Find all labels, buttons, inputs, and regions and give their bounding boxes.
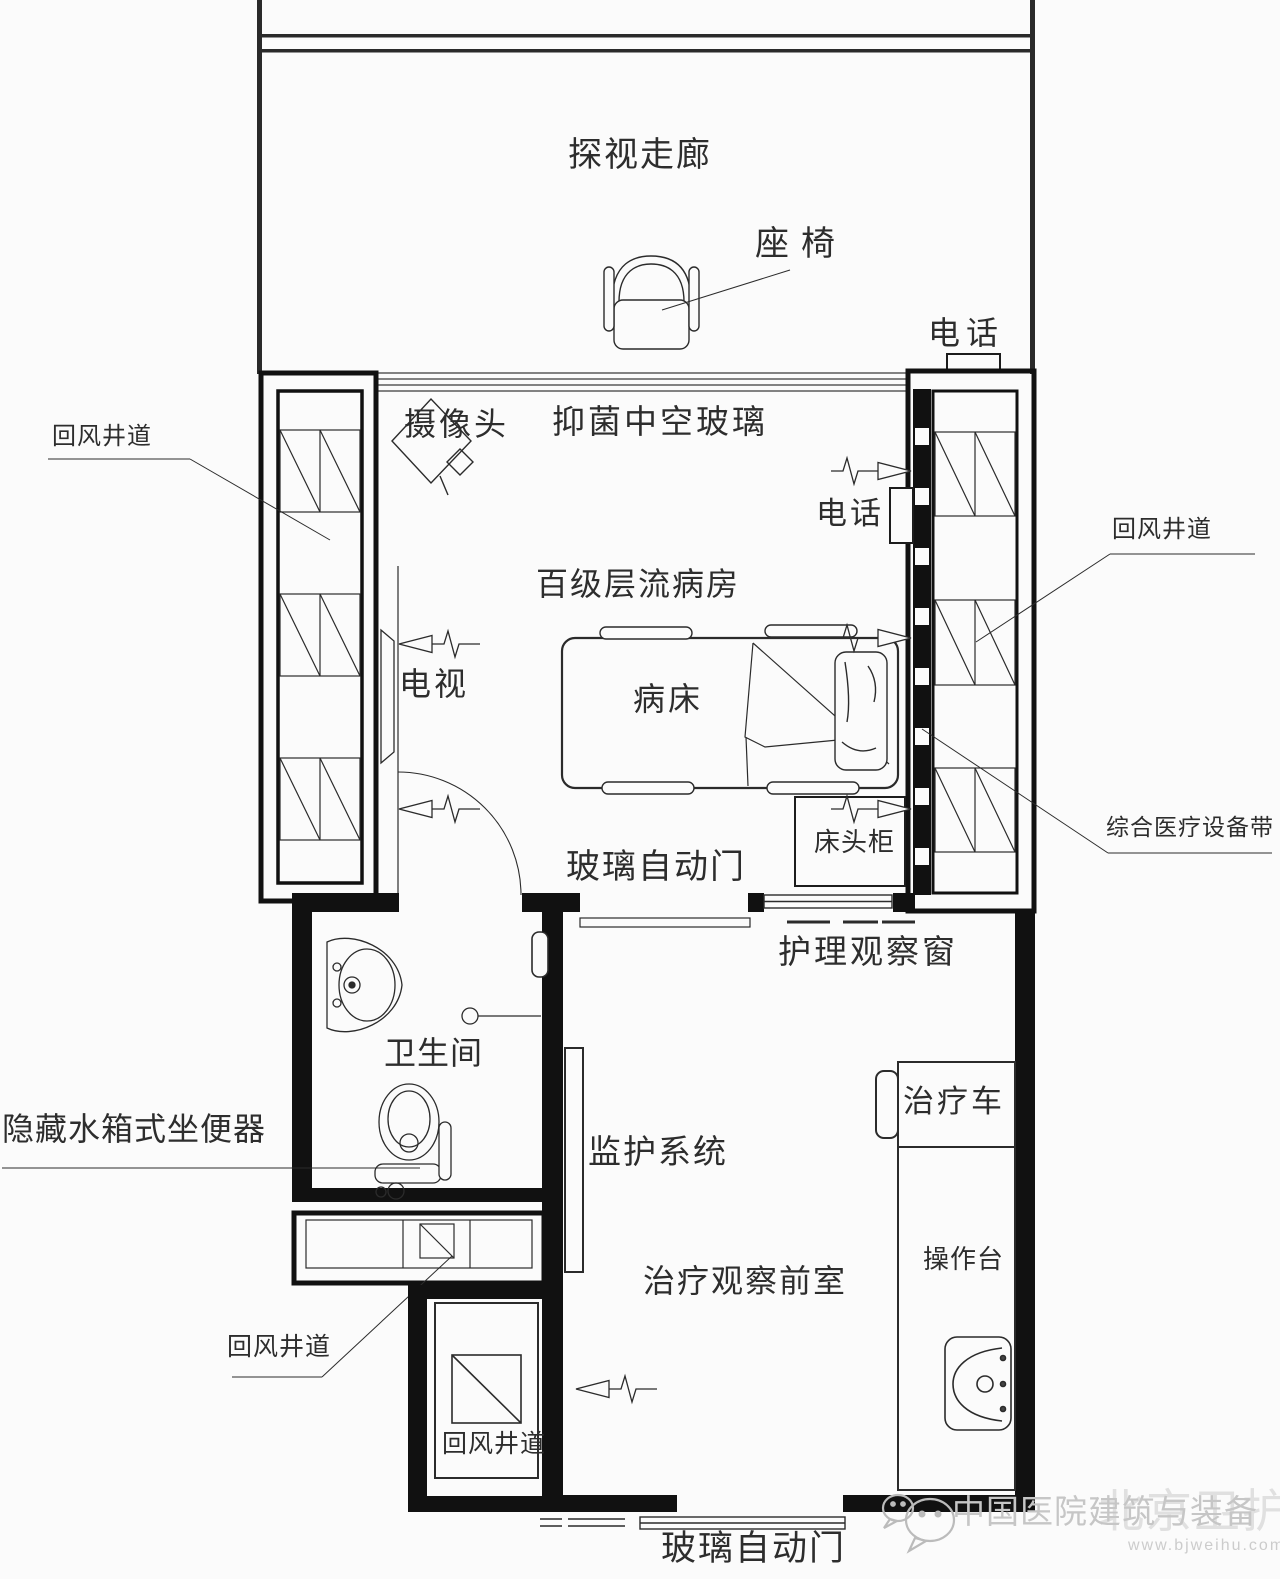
- corridor-top-line2: [257, 49, 1035, 53]
- counter-sink: [945, 1337, 1011, 1430]
- lower-shaft-room-label: 回风井道: [442, 1431, 546, 1459]
- camera-label: 摄像头: [404, 407, 509, 442]
- room-phone-label: 电话: [816, 497, 884, 531]
- monitor-label: 监护系统: [588, 1134, 728, 1170]
- room-phone-box: [890, 488, 913, 543]
- anteroom-door-label: 玻璃自动门: [661, 1530, 846, 1569]
- monitor-panel: [565, 1048, 583, 1272]
- divider-wall: [542, 893, 563, 1512]
- corridor-phone-label: 电话: [928, 316, 1004, 351]
- ward-label: 百级层流病房: [536, 567, 740, 602]
- toilet-label: 隐藏水箱式坐便器: [2, 1112, 266, 1147]
- cabinet-callout-arrow: [831, 796, 911, 822]
- counter: [876, 1062, 1015, 1490]
- concealed-tank-toilet: [375, 1084, 451, 1199]
- cart-label: 治疗车: [903, 1085, 1005, 1119]
- corridor-left-wall: [257, 0, 262, 374]
- floor-plan: 探视走廊 座椅 电话 回风井道 摄像头 抑菌中空玻璃 电话 回风井道 百级层流病…: [0, 0, 1280, 1579]
- counter-label: 操作台: [923, 1245, 1004, 1274]
- shaft-fan-symbol: [452, 1355, 521, 1423]
- left-return-air-shaft: [261, 373, 376, 901]
- bathroom-left-wall: [292, 893, 312, 1191]
- left-shaft-leader-line: [48, 459, 330, 540]
- hospital-bed: [562, 625, 898, 794]
- bathroom-bottom-wall: [292, 1188, 563, 1202]
- bed-wheel: [767, 782, 859, 794]
- phone-callout-arrow: [831, 458, 911, 484]
- pillow: [835, 652, 887, 770]
- glass-wall: [377, 373, 908, 391]
- door-callout-arrow: [399, 796, 480, 822]
- floor-drain: [462, 1008, 541, 1024]
- bed-wheel: [602, 782, 694, 794]
- cabinet-label: 床头柜: [814, 828, 895, 857]
- left-shaft-label: 回风井道: [52, 424, 152, 450]
- door-track-dashes: [540, 1519, 625, 1526]
- watermark-title: 中国医院建筑与装备: [952, 1494, 1258, 1530]
- right-shaft-hatch-symbols: [935, 432, 1015, 852]
- corridor-label: 探视走廊: [568, 137, 712, 174]
- equipment-belt-label: 综合医疗设备带: [1106, 815, 1274, 840]
- bottom-left-shaft-label: 回风井道: [227, 1334, 331, 1362]
- bed-label: 病床: [633, 682, 703, 717]
- anteroom-callout-arrow: [576, 1376, 657, 1402]
- ward-sliding-door: [764, 895, 892, 908]
- left-shaft-hatch-symbols: [280, 430, 360, 840]
- bathroom-label: 卫生间: [384, 1036, 483, 1071]
- right-shaft-label: 回风井道: [1112, 517, 1212, 543]
- seat-leader-line: [662, 270, 790, 310]
- corridor-right-wall: [1030, 0, 1035, 374]
- anteroom-sliding-door: [640, 1517, 845, 1529]
- anteroom-label: 治疗观察前室: [643, 1264, 847, 1299]
- seat-label: 座椅: [755, 226, 847, 263]
- bathroom-sink: [327, 938, 402, 1031]
- tv-label: 电视: [399, 667, 469, 702]
- ward-door-label: 玻璃自动门: [566, 849, 746, 886]
- medical-equipment-belt: [913, 389, 931, 895]
- glass-label: 抑菌中空玻璃: [552, 404, 768, 440]
- return-air-duct-box: [294, 1213, 544, 1283]
- watermark-url: www.bjweihu.com: [1128, 1537, 1280, 1555]
- observation-window-label: 护理观察窗: [778, 934, 958, 970]
- duct-box-inner: [306, 1220, 532, 1268]
- tv-panel: [381, 630, 394, 763]
- cart-handle: [876, 1071, 898, 1138]
- floor-plan-drawing: [0, 0, 1280, 1579]
- tv-callout-arrow: [399, 631, 480, 657]
- nursing-observation-window: [580, 918, 915, 927]
- anteroom-right-wall: [1015, 911, 1035, 1512]
- wall-fixture: [532, 932, 548, 977]
- corridor-top-line: [257, 34, 1035, 38]
- bathroom-door-swing-arc: [398, 772, 521, 895]
- bed-wheel: [600, 627, 692, 639]
- duct-fan-symbol: [420, 1224, 454, 1258]
